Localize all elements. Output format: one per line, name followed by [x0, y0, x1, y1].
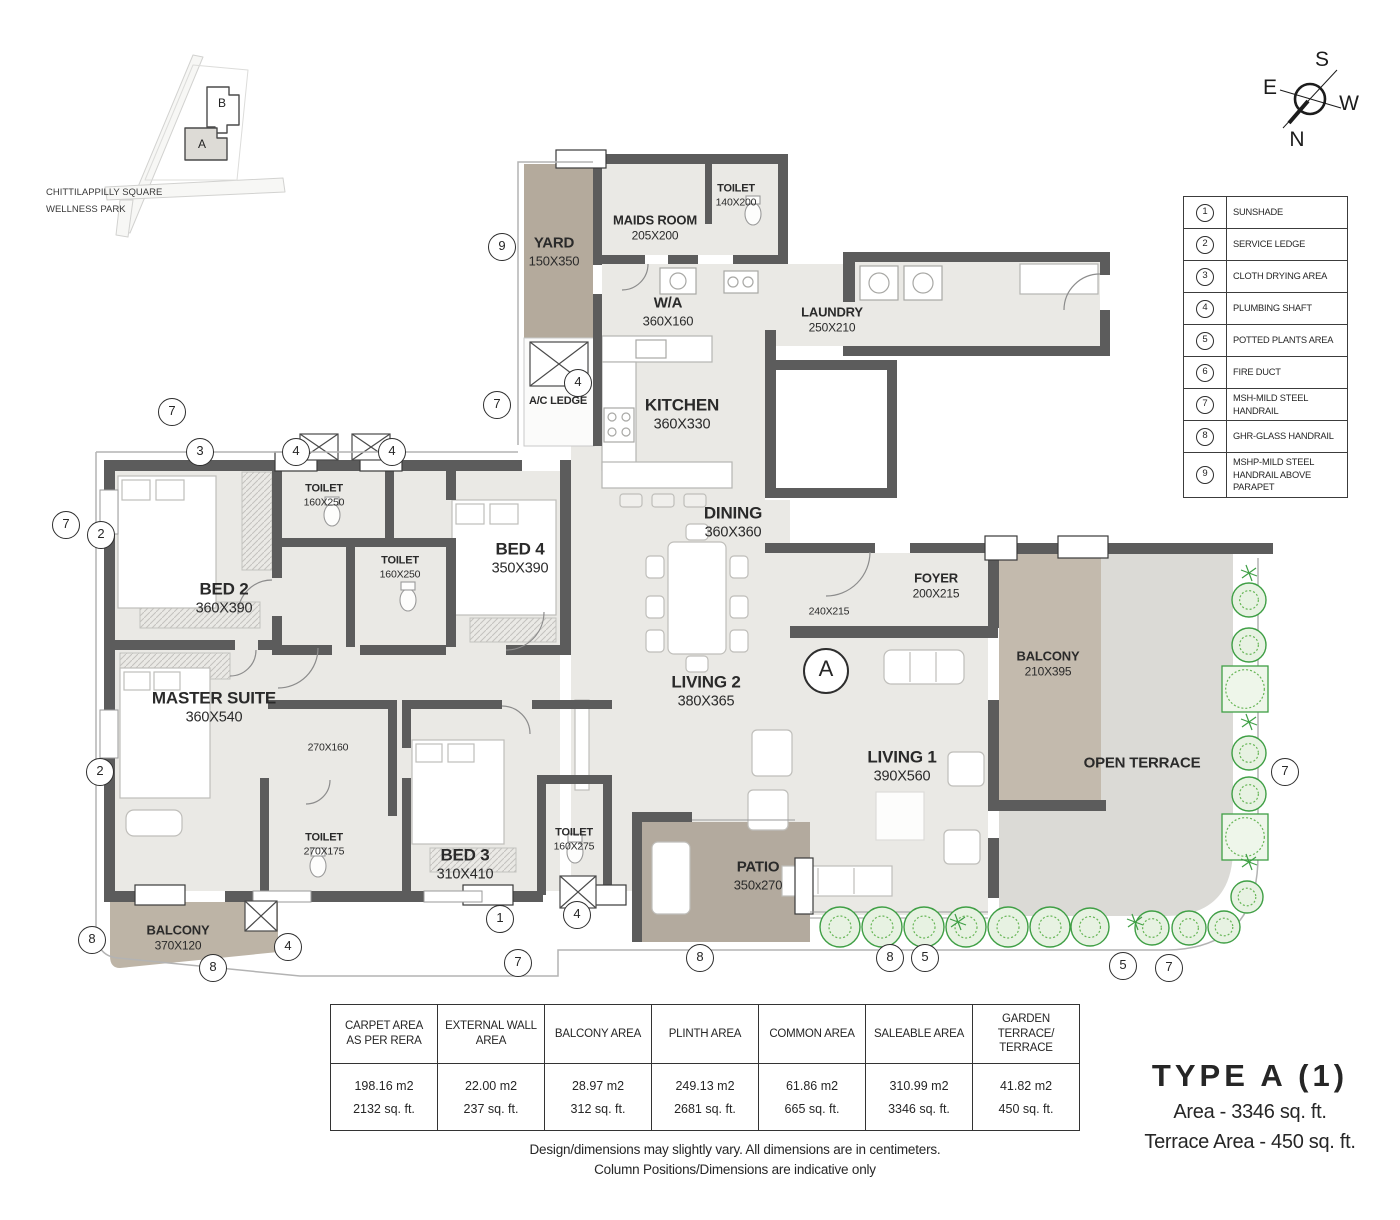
area-table-column: BALCONY AREA28.97 m2312 sq. ft.	[545, 1005, 652, 1130]
compass-west: W	[1339, 92, 1359, 116]
area-table-column: PLINTH AREA249.13 m22681 sq. ft.	[652, 1005, 759, 1130]
callout-marker: 4	[274, 933, 302, 961]
room-label-toilet-bed3: TOILET160X275	[554, 827, 595, 854]
plan-terrace-line: Terrace Area - 450 sq. ft.	[1120, 1131, 1380, 1154]
area-table-column: SALEABLE AREA310.99 m23346 sq. ft.	[866, 1005, 973, 1130]
area-table-column: COMMON AREA61.86 m2665 sq. ft.	[759, 1005, 866, 1130]
area-table-column: CARPET AREA AS PER RERA198.16 m22132 sq.…	[331, 1005, 438, 1130]
room-label-toilet-mid: TOILET160X250	[380, 555, 421, 582]
plan-title: TYPE A (1)	[1120, 1058, 1380, 1094]
callout-marker: 3	[186, 438, 214, 466]
room-label-passage: 240X215	[809, 605, 850, 618]
compass-south: S	[1315, 48, 1329, 72]
callout-marker: 8	[199, 954, 227, 982]
legend-table: 1SUNSHADE 2SERVICE LEDGE 3CLOTH DRYING A…	[1183, 196, 1348, 498]
room-label-work-area: W/A360X160	[643, 295, 694, 330]
compass-north: N	[1289, 128, 1304, 152]
room-label-maids-room: MAIDS ROOM205X200	[613, 212, 697, 243]
legend-row: 9MSHP-MILD STEEL HANDRAIL ABOVE PARAPET	[1184, 453, 1347, 497]
room-label-ac-ledge: A/C LEDGE	[529, 395, 587, 409]
site-map-label: CHITTILAPPILLY SQUARE WELLNESS PARK	[46, 184, 162, 218]
room-label-living2: LIVING 2380X365	[671, 671, 740, 710]
area-table: CARPET AREA AS PER RERA198.16 m22132 sq.…	[330, 1004, 1080, 1131]
room-label-dressing: 270X160	[308, 741, 349, 754]
callout-marker: 4	[282, 438, 310, 466]
room-label-bed3: BED 3310X410	[437, 844, 494, 883]
title-block: TYPE A (1) Area - 3346 sq. ft. Terrace A…	[1120, 1058, 1380, 1154]
legend-row: 6FIRE DUCT	[1184, 357, 1347, 389]
area-table-column: GARDEN TERRACE/ TERRACE41.82 m2450 sq. f…	[973, 1005, 1079, 1130]
building-b-label: B	[218, 96, 226, 110]
callout-marker: 8	[686, 944, 714, 972]
callout-marker: 1	[486, 905, 514, 933]
callout-marker: 8	[78, 926, 106, 954]
legend-row: 5POTTED PLANTS AREA	[1184, 325, 1347, 357]
room-label-toilet-maids: TOILET140X200	[716, 183, 757, 210]
callout-marker: 7	[1155, 954, 1183, 982]
room-label-toilet-bed2: TOILET160X250	[304, 483, 345, 510]
room-label-living1: LIVING 1390X560	[867, 746, 936, 785]
plan-area-line: Area - 3346 sq. ft.	[1120, 1101, 1380, 1124]
legend-row: 8GHR-GLASS HANDRAIL	[1184, 421, 1347, 453]
callout-marker: 4	[564, 369, 592, 397]
room-label-balcony-left: BALCONY370X120	[147, 922, 210, 953]
callout-marker: 9	[488, 233, 516, 261]
room-label-master-suite: MASTER SUITE360X540	[152, 687, 276, 726]
unit-marker: A	[803, 648, 849, 694]
callout-marker: 7	[158, 398, 186, 426]
callout-marker: 2	[86, 758, 114, 786]
room-label-kitchen: KITCHEN360X330	[645, 394, 719, 433]
callout-marker: 2	[87, 521, 115, 549]
callout-marker: 4	[563, 901, 591, 929]
legend-row: 7MSH-MILD STEEL HANDRAIL	[1184, 389, 1347, 421]
room-label-balcony-right: BALCONY210X395	[1017, 648, 1080, 679]
callout-marker: 7	[1271, 758, 1299, 786]
room-label-open-terrace: OPEN TERRACE	[1084, 755, 1201, 774]
legend-row: 3CLOTH DRYING AREA	[1184, 261, 1347, 293]
legend-row: 2SERVICE LEDGE	[1184, 229, 1347, 261]
room-label-toilet-master: TOILET270X175	[304, 832, 345, 859]
room-label-bed4: BED 4350X390	[492, 538, 549, 577]
room-label-dining: DINING360X360	[704, 502, 762, 541]
callout-marker: 5	[1109, 952, 1137, 980]
disclaimer: Design/dimensions may slightly vary. All…	[470, 1140, 1000, 1181]
callout-marker: 7	[483, 391, 511, 419]
callout-marker: 7	[52, 511, 80, 539]
compass-east: E	[1263, 76, 1277, 100]
callout-marker: 4	[378, 438, 406, 466]
legend-row: 4PLUMBING SHAFT	[1184, 293, 1347, 325]
legend-row: 1SUNSHADE	[1184, 197, 1347, 229]
compass-icon	[1280, 70, 1341, 128]
callout-marker: 5	[911, 944, 939, 972]
callout-marker: 7	[504, 949, 532, 977]
callout-marker: 8	[876, 944, 904, 972]
room-label-laundry: LAUNDRY250X210	[801, 304, 863, 335]
room-label-bed2: BED 2360X390	[196, 578, 253, 617]
building-a-label: A	[198, 137, 206, 151]
room-label-foyer: FOYER200X215	[913, 570, 960, 601]
area-table-column: EXTERNAL WALL AREA22.00 m2237 sq. ft.	[438, 1005, 545, 1130]
room-label-patio: PATIO350x270	[734, 859, 782, 894]
floor-plan-page: CHITTILAPPILLY SQUARE WELLNESS PARK B A …	[0, 0, 1400, 1220]
room-label-yard: YARD150X350	[529, 235, 580, 270]
